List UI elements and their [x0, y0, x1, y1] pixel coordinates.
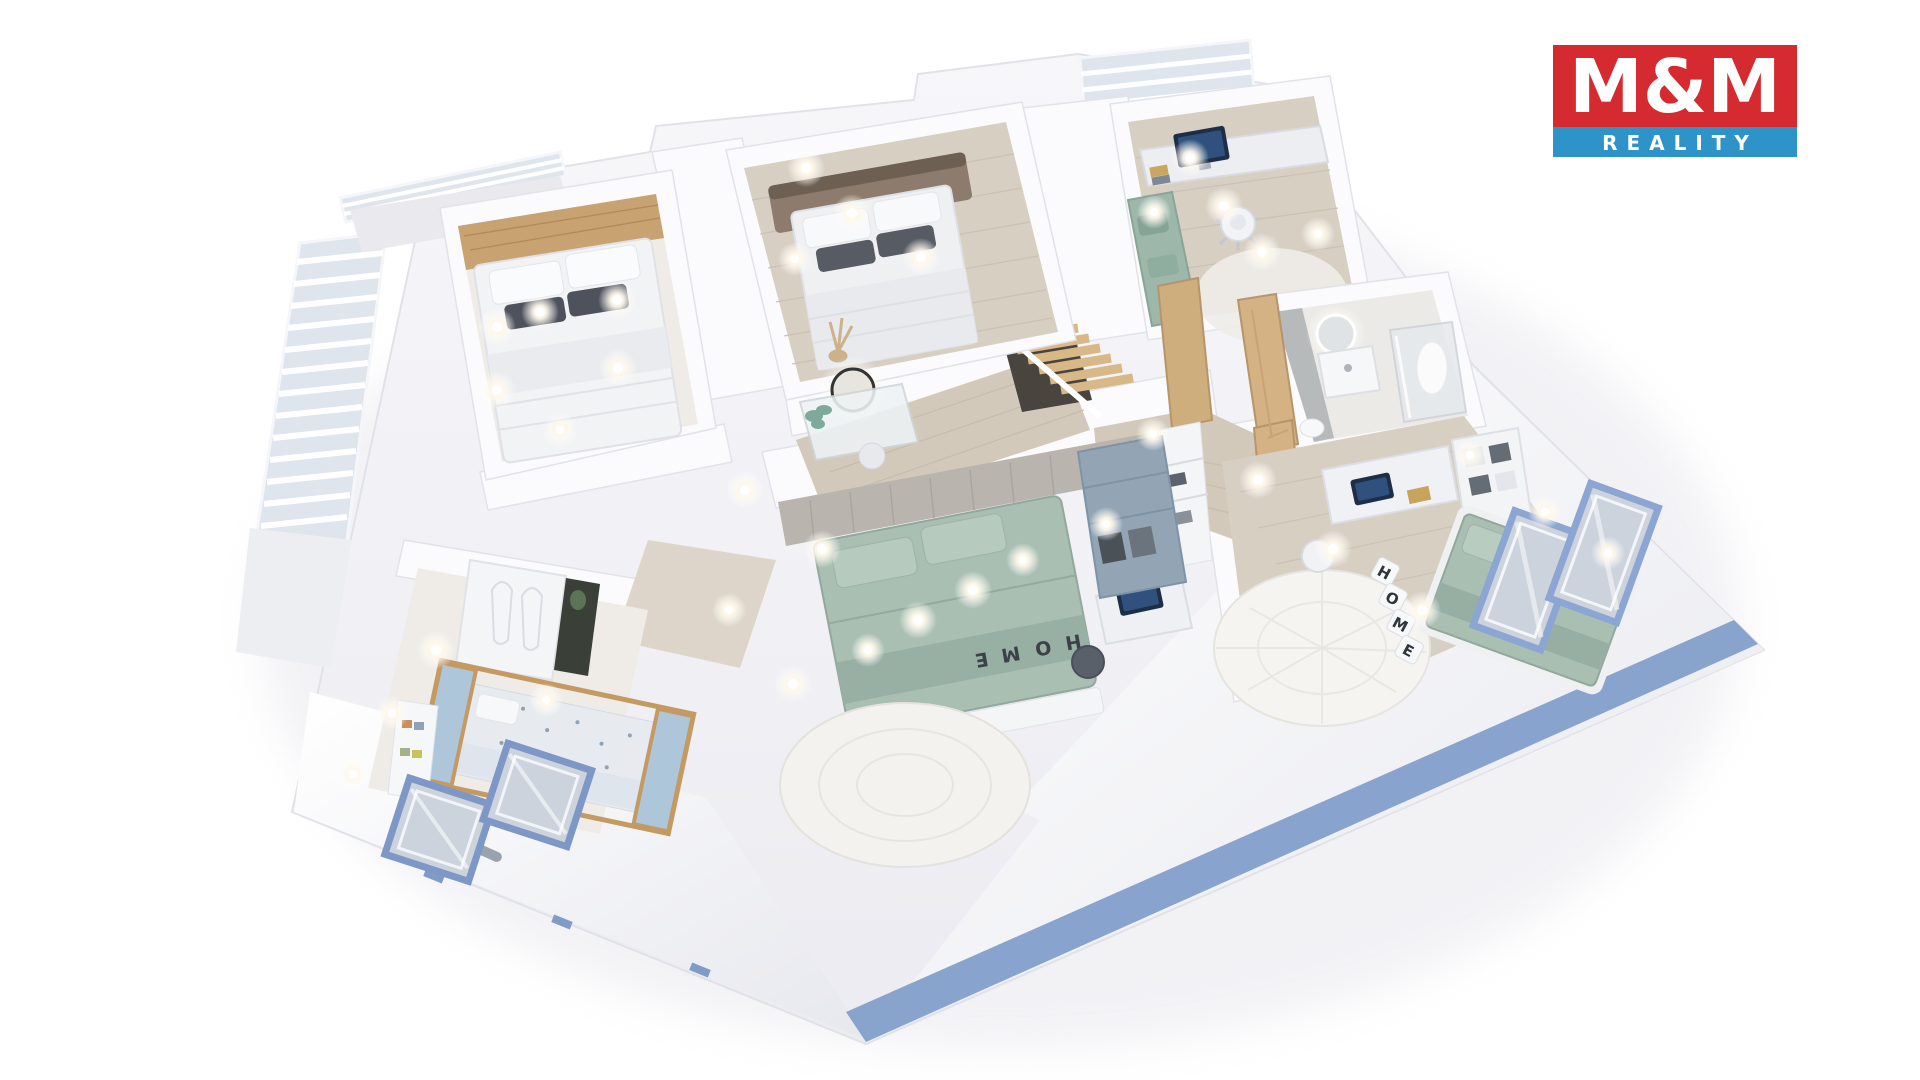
logo-mm-text: M&M: [1569, 44, 1781, 130]
bathroom-round-mirror: [1317, 315, 1355, 353]
floorplan-render-page: E M O H: [0, 0, 1920, 1080]
book-stack: [1149, 165, 1170, 186]
mm-reality-logo: M&M REALITY: [1553, 44, 1797, 157]
floorplan-3d-scene: E M O H: [0, 0, 1920, 1080]
svg-text:M: M: [999, 641, 1021, 666]
round-rug-master: [780, 703, 1030, 867]
vanity-stool: [859, 443, 885, 469]
shower: [1390, 322, 1466, 422]
logo-reality-text: REALITY: [1602, 131, 1758, 155]
toilet: [1300, 419, 1324, 437]
bed-double: [473, 238, 682, 464]
desk-chair-dark: [1072, 646, 1104, 678]
washbasin: [1318, 346, 1380, 398]
